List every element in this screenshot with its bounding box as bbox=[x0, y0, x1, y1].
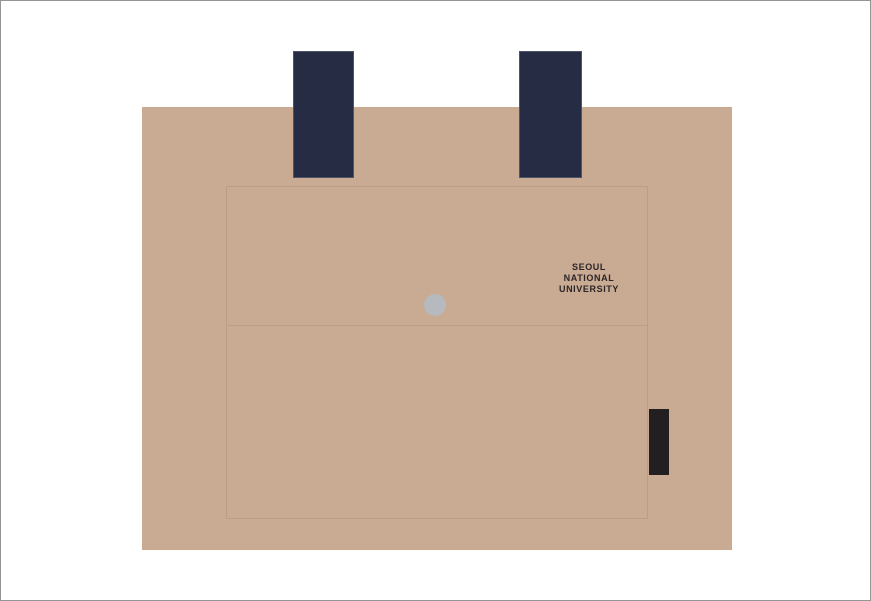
logo-line-3: UNIVERSITY bbox=[529, 284, 649, 295]
logo-line-1: SEOUL bbox=[529, 262, 649, 273]
artboard: SEOUL NATIONAL UNIVERSITY bbox=[0, 0, 871, 601]
university-logo-text: SEOUL NATIONAL UNIVERSITY bbox=[529, 262, 649, 295]
zipper-pull-tag bbox=[649, 409, 669, 475]
bag-front-panel bbox=[226, 186, 648, 519]
bag-strap-right bbox=[519, 51, 582, 178]
logo-line-2: NATIONAL bbox=[529, 273, 649, 284]
bag-strap-left bbox=[293, 51, 354, 178]
snap-button-icon bbox=[424, 294, 446, 316]
panel-divider-line bbox=[227, 325, 647, 326]
